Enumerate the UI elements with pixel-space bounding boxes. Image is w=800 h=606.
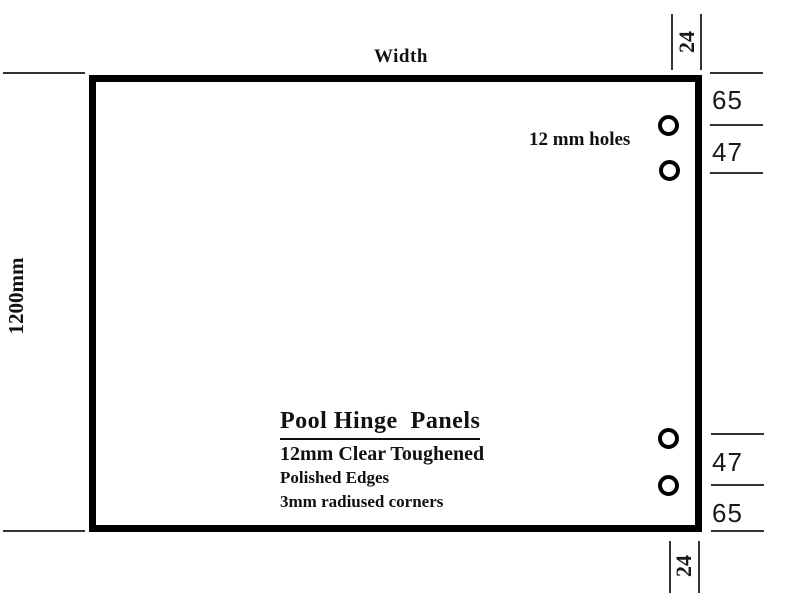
dim-label-right-bottom-47: 47 [712, 449, 743, 475]
dim-tick-right-top-2 [710, 124, 763, 126]
dim-label-top-24: 24 [676, 29, 698, 55]
dim-label-right-top-47: 47 [712, 139, 743, 165]
spec-line-corners: 3mm radiused corners [280, 492, 443, 512]
drawing-title: Pool Hinge Panels [280, 408, 480, 440]
dim-tick-right-bottom-3 [711, 530, 764, 532]
dim-tick-right-top-1 [710, 72, 763, 74]
spec-line-glass-type: 12mm Clear Toughened [280, 443, 484, 466]
dim-label-right-bottom-65: 65 [712, 500, 743, 526]
dim-tick-top-24-right [700, 14, 702, 70]
extension-line-bottom-left [3, 530, 85, 532]
height-dimension-label: 1200mm [5, 254, 27, 338]
width-dimension-label: Width [374, 46, 428, 68]
dim-tick-bottom-24-right [698, 541, 700, 593]
bolt-hole-top-1 [658, 115, 679, 136]
dim-label-bottom-24: 24 [673, 553, 695, 579]
dim-tick-right-top-3 [710, 172, 763, 174]
dim-tick-right-bottom-2 [711, 484, 764, 486]
holes-annotation-label: 12 mm holes [529, 129, 630, 151]
drawing-canvas: Width 1200mm 12 mm holes 24 24 65 47 47 … [0, 0, 800, 606]
bolt-hole-bottom-2 [658, 475, 679, 496]
bolt-hole-bottom-1 [658, 428, 679, 449]
bolt-hole-top-2 [659, 160, 680, 181]
extension-line-top-left [3, 72, 85, 74]
spec-line-edges: Polished Edges [280, 468, 389, 488]
dim-tick-top-24-left [671, 14, 673, 70]
dim-tick-right-bottom-1 [711, 433, 764, 435]
dim-label-right-top-65: 65 [712, 87, 743, 113]
